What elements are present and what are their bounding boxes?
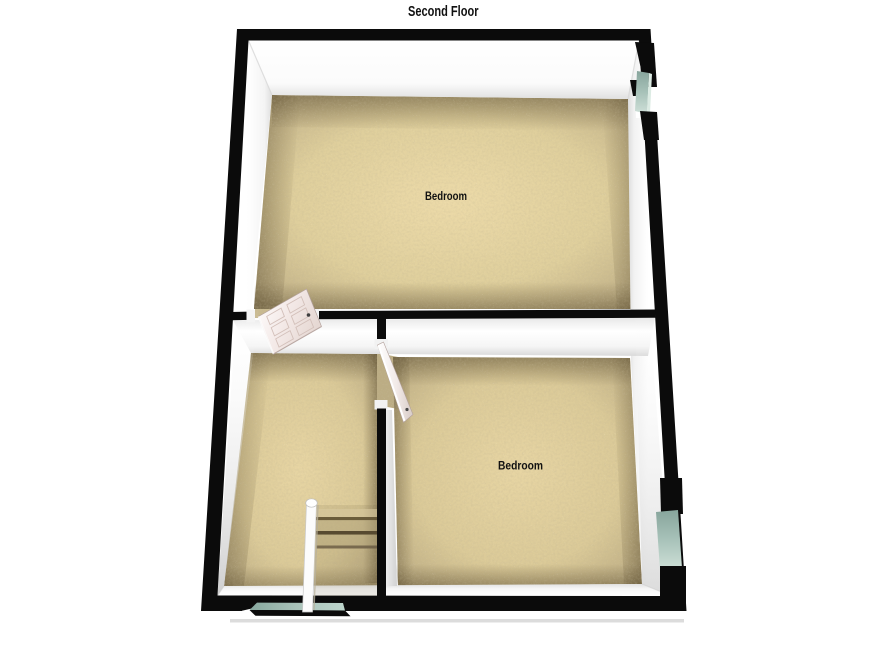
svg-text:Bedroom: Bedroom: [498, 460, 543, 473]
svg-text:Second Floor: Second Floor: [408, 4, 479, 20]
svg-text:Bedroom: Bedroom: [425, 190, 467, 203]
